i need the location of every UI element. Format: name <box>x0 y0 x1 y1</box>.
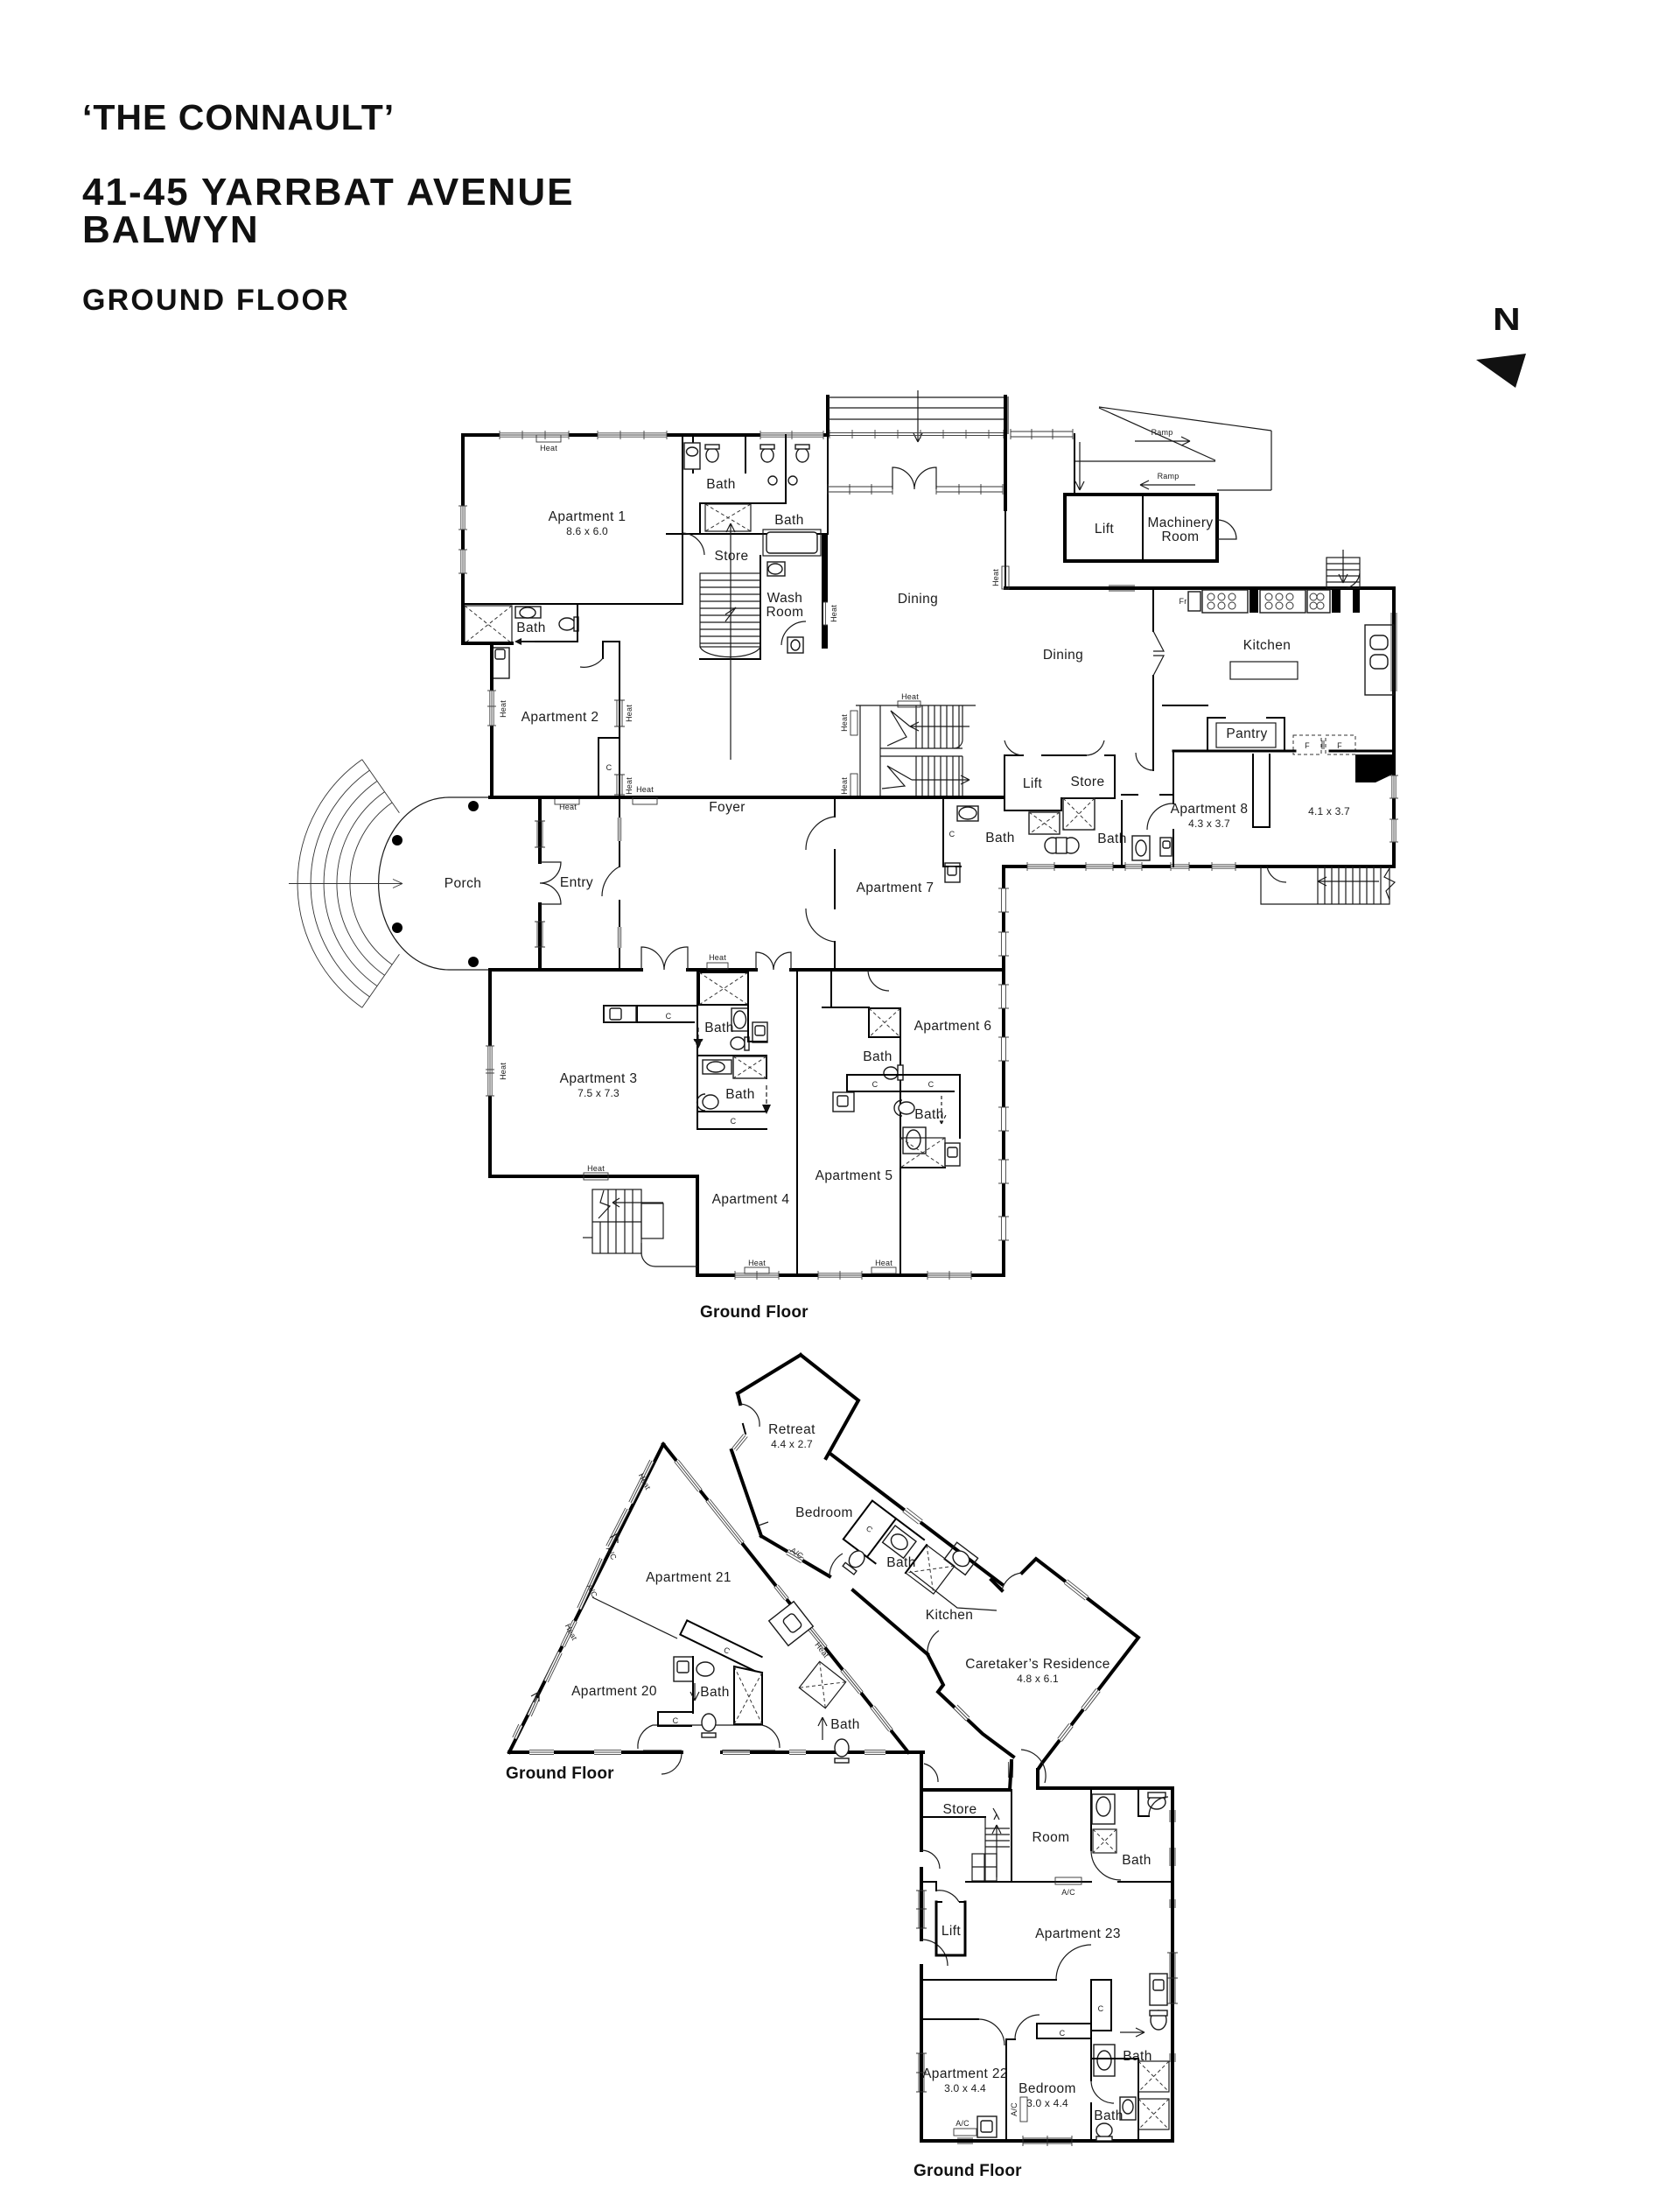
svg-text:Porch: Porch <box>444 876 482 891</box>
svg-text:Wash: Wash <box>767 591 803 606</box>
svg-text:Apartment 22: Apartment 22 <box>922 2066 1008 2081</box>
svg-text:7.5 x 7.3: 7.5 x 7.3 <box>577 1087 619 1099</box>
svg-text:C: C <box>1098 2004 1104 2013</box>
svg-text:N: N <box>1493 302 1521 337</box>
svg-text:F: F <box>1305 741 1310 750</box>
svg-text:C: C <box>666 1012 672 1021</box>
svg-text:Heat: Heat <box>625 705 633 722</box>
svg-text:Lift: Lift <box>941 1924 962 1939</box>
svg-text:Store: Store <box>714 549 748 564</box>
svg-text:Pantry: Pantry <box>1226 726 1267 741</box>
svg-text:A/C: A/C <box>1061 1888 1075 1897</box>
svg-text:Heat: Heat <box>991 569 1000 586</box>
svg-text:Ground Floor: Ground Floor <box>913 2162 1022 2180</box>
svg-text:Heat: Heat <box>875 1259 892 1267</box>
svg-text:Apartment 6: Apartment 6 <box>914 1019 992 1034</box>
svg-text:8.6 x 6.0: 8.6 x 6.0 <box>566 525 608 537</box>
svg-text:Dining: Dining <box>1043 648 1083 663</box>
svg-text:Kitchen: Kitchen <box>926 1608 974 1623</box>
svg-text:Caretaker’s Residence: Caretaker’s Residence <box>965 1657 1110 1672</box>
svg-text:Ramp: Ramp <box>1151 428 1173 437</box>
svg-text:Apartment 8: Apartment 8 <box>1171 802 1249 817</box>
svg-text:Bath: Bath <box>914 1107 944 1122</box>
svg-text:Lift: Lift <box>1095 522 1115 537</box>
svg-text:C: C <box>673 1716 679 1725</box>
svg-text:Apartment 3: Apartment 3 <box>560 1071 638 1086</box>
svg-text:Heat: Heat <box>540 444 557 453</box>
svg-text:Heat: Heat <box>625 777 633 795</box>
svg-text:Room: Room <box>766 605 804 620</box>
svg-text:A/C: A/C <box>955 2119 969 2128</box>
svg-text:Entry: Entry <box>560 875 593 890</box>
svg-text:Heat: Heat <box>709 953 726 962</box>
svg-text:3.0 x 4.4: 3.0 x 4.4 <box>944 2082 986 2094</box>
svg-text:Store: Store <box>942 1802 976 1817</box>
svg-text:Retreat: Retreat <box>768 1422 815 1437</box>
svg-text:Heat: Heat <box>636 785 654 794</box>
svg-text:Apartment 21: Apartment 21 <box>646 1570 731 1585</box>
svg-text:41-45 YARRBAT AVENUE: 41-45 YARRBAT AVENUE <box>82 171 574 214</box>
svg-text:C: C <box>928 1080 934 1089</box>
svg-text:Store: Store <box>1070 775 1104 789</box>
svg-text:Apartment 7: Apartment 7 <box>857 880 934 895</box>
svg-text:Heat: Heat <box>840 714 849 732</box>
svg-text:Lift: Lift <box>1023 776 1043 791</box>
svg-text:Bath: Bath <box>704 1021 734 1035</box>
svg-text:Heat: Heat <box>829 605 838 622</box>
svg-text:4.4 x 2.7: 4.4 x 2.7 <box>771 1438 813 1450</box>
svg-text:Bath: Bath <box>985 831 1015 845</box>
svg-text:Heat: Heat <box>499 1063 507 1080</box>
svg-text:Heat: Heat <box>559 803 577 811</box>
svg-text:Fr: Fr <box>1179 597 1187 606</box>
svg-text:A/C: A/C <box>1010 2102 1018 2116</box>
svg-text:Ground Floor: Ground Floor <box>506 1764 614 1783</box>
svg-text:C: C <box>872 1080 878 1089</box>
svg-text:Apartment 4: Apartment 4 <box>712 1192 790 1207</box>
svg-text:Bath: Bath <box>700 1685 730 1700</box>
svg-text:F: F <box>1337 741 1342 750</box>
svg-text:GROUND FLOOR: GROUND FLOOR <box>82 284 350 317</box>
svg-text:Heat: Heat <box>840 777 849 795</box>
svg-text:Bath: Bath <box>774 513 804 528</box>
svg-text:Bath: Bath <box>830 1717 860 1732</box>
svg-text:Heat: Heat <box>499 700 507 718</box>
svg-text:Apartment 1: Apartment 1 <box>549 509 626 524</box>
svg-text:Bath: Bath <box>516 621 546 635</box>
svg-text:Ramp: Ramp <box>1158 472 1179 481</box>
svg-text:Bath: Bath <box>1122 1853 1151 1868</box>
svg-text:3.0 x 4.4: 3.0 x 4.4 <box>1026 2097 1068 2109</box>
svg-text:Bath: Bath <box>863 1049 892 1064</box>
svg-text:C: C <box>731 1117 737 1126</box>
svg-text:BALWYN: BALWYN <box>82 208 260 251</box>
svg-text:Machinery: Machinery <box>1147 516 1213 530</box>
svg-text:Room: Room <box>1032 1830 1070 1845</box>
svg-text:Bath: Bath <box>1094 2108 1123 2123</box>
svg-text:Dining: Dining <box>898 592 938 607</box>
svg-text:Apartment 5: Apartment 5 <box>815 1168 893 1183</box>
svg-text:Heat: Heat <box>901 692 919 701</box>
svg-text:Kitchen: Kitchen <box>1243 638 1291 653</box>
svg-text:Apartment 23: Apartment 23 <box>1035 1926 1121 1941</box>
svg-text:4.3 x 3.7: 4.3 x 3.7 <box>1188 817 1230 830</box>
svg-text:4.1 x 3.7: 4.1 x 3.7 <box>1308 805 1350 817</box>
svg-text:Apartment 20: Apartment 20 <box>571 1684 657 1699</box>
svg-text:Apartment 2: Apartment 2 <box>521 710 599 725</box>
svg-text:Foyer: Foyer <box>709 800 745 815</box>
svg-text:‘THE CONNAULT’: ‘THE CONNAULT’ <box>82 97 395 137</box>
svg-text:Bedroom: Bedroom <box>1018 2081 1076 2096</box>
svg-text:Bath: Bath <box>706 477 736 492</box>
svg-text:4.8 x 6.1: 4.8 x 6.1 <box>1017 1673 1059 1685</box>
svg-text:C: C <box>606 763 612 772</box>
svg-text:Heat: Heat <box>748 1259 766 1267</box>
svg-text:Bath: Bath <box>886 1555 916 1570</box>
svg-text:Heat: Heat <box>587 1164 605 1173</box>
svg-text:C: C <box>949 830 955 838</box>
svg-text:C: C <box>1060 2029 1066 2038</box>
svg-text:Bedroom: Bedroom <box>795 1505 853 1520</box>
svg-text:Ground Floor: Ground Floor <box>700 1303 808 1322</box>
svg-text:Room: Room <box>1162 530 1200 544</box>
svg-text:Bath: Bath <box>725 1087 755 1102</box>
